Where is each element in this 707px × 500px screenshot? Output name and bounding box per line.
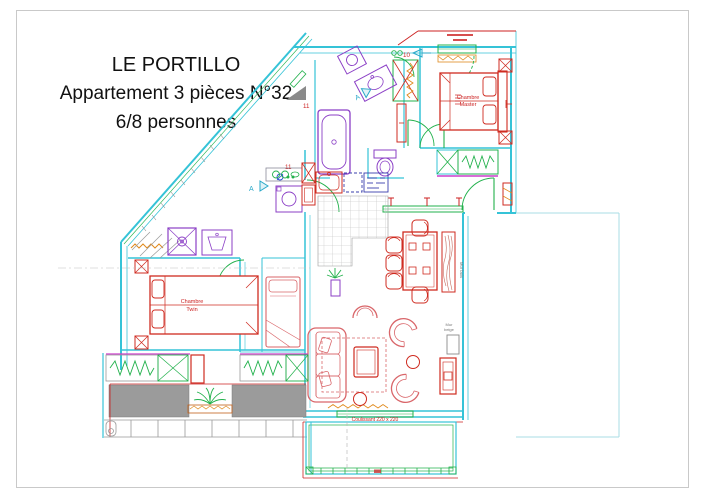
dining-chair — [386, 255, 402, 271]
coffee-table — [354, 347, 378, 377]
entry-door — [462, 178, 494, 210]
balcony-door — [191, 355, 204, 383]
washbasin — [354, 65, 396, 101]
balcony — [104, 384, 307, 437]
balcony-plant — [188, 388, 232, 413]
wood-wall-panel — [442, 232, 455, 292]
sloped-ceiling-hatch — [132, 232, 180, 258]
dining-chair — [386, 273, 402, 289]
svg-text:A: A — [249, 186, 254, 193]
floor-plan-drawing: Chambre Master 10 — [0, 0, 707, 500]
shower — [168, 228, 196, 255]
svg-text:A: A — [354, 94, 362, 103]
storage-row — [106, 354, 308, 383]
master-closet — [393, 60, 418, 101]
fan-armchair — [386, 372, 421, 408]
twin-beds — [150, 276, 258, 334]
building-corridor-lines — [516, 213, 619, 437]
twin-room-label-2: Twin — [186, 307, 197, 313]
side-table — [407, 356, 420, 369]
diagonal-window-vent — [290, 71, 306, 88]
nightstand — [135, 336, 148, 349]
parapet-wall — [109, 385, 189, 417]
dining-chair — [412, 220, 428, 236]
door-number-11a: 11 — [303, 103, 310, 110]
master-room-label-2: Master — [460, 102, 477, 108]
bathroom — [318, 46, 397, 174]
washer-column — [276, 186, 302, 212]
tv-unit — [440, 358, 456, 394]
twin-bedroom: Chambre Twin — [132, 228, 258, 349]
nightstand — [135, 260, 148, 273]
floor-plan-page: LE PORTILLO Appartement 3 pièces N°32 6/… — [0, 0, 707, 500]
door-number-11b: 11 — [285, 164, 292, 171]
sofa — [308, 328, 346, 402]
kitchen — [302, 163, 388, 266]
twin-room-label-1: Chambre — [181, 299, 204, 305]
wall-note-wood: Mur bois — [459, 262, 464, 278]
glass-partition — [383, 198, 463, 212]
washing-machine — [338, 46, 367, 74]
diagonal-wall-hatch — [142, 86, 306, 231]
dining-area: Mur bois — [386, 220, 464, 303]
fan-armchair — [384, 313, 419, 349]
balcony-railing — [104, 420, 307, 437]
wc-room — [374, 104, 406, 176]
dining-chair — [386, 237, 402, 253]
hall-appliances — [266, 168, 302, 212]
dishwasher — [344, 173, 362, 192]
dining-table — [403, 232, 437, 290]
bathtub — [318, 110, 350, 174]
twin-washbasin — [202, 230, 232, 255]
door-number-10: 10 — [403, 52, 410, 59]
parapet-wall — [232, 385, 306, 417]
hall-closets — [437, 150, 512, 205]
plant-stand — [327, 268, 343, 296]
roof-parapet-lines — [398, 31, 516, 45]
wall-note-beige-2: beige — [444, 327, 455, 332]
kitchen-tall-units — [302, 163, 315, 205]
bunk-bed-nook — [266, 277, 300, 347]
side-table — [354, 393, 367, 406]
section-marker-a2: A — [353, 85, 374, 102]
living-room: Mur beige Coulissant 220 x 220 — [308, 268, 459, 423]
wall-niche — [447, 335, 459, 354]
armchair-top — [353, 306, 377, 318]
section-marker-a1: A — [249, 181, 268, 193]
kitchen-floor-tiles — [318, 196, 388, 266]
